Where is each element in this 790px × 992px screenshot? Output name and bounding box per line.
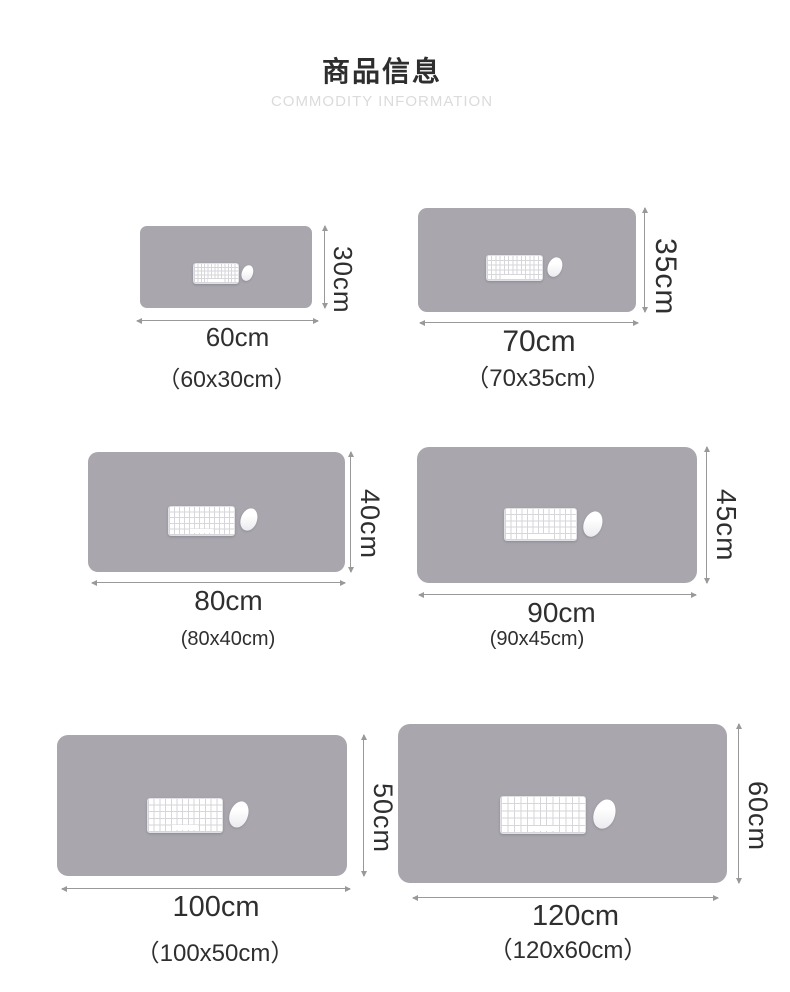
mousepad-illustration [140,226,312,308]
width-dimension-line [62,888,350,889]
width-dimension-label: 70cm [430,325,648,358]
page-title: 商品信息 [0,56,764,88]
height-dimension-line [644,208,645,312]
mouse-icon [545,255,565,278]
mouse-icon [226,799,252,830]
width-dimension-line [420,322,638,323]
mouse-icon [589,796,619,831]
keyboard-icon [504,508,577,541]
height-dimension-label: 50cm [369,748,396,889]
height-dimension-label: 30cm [330,239,356,321]
page-header: 商品信息 COMMODITY INFORMATION [0,56,764,110]
keyboard-icon [168,506,236,536]
height-dimension-line [706,447,707,583]
width-dimension-label: 80cm [102,586,355,617]
height-dimension-line [363,735,364,876]
width-dimension-label: 100cm [72,892,360,924]
height-dimension-label: 35cm [650,225,680,329]
height-dimension-label: 40cm [356,464,383,584]
page-subtitle: COMMODITY INFORMATION [0,93,764,110]
height-dimension-line [738,724,739,883]
size-panel-90x45: 45cm 90cm (90x45cm) [417,447,697,583]
height-dimension-line [324,226,325,308]
width-dimension-label: 90cm [423,598,700,629]
size-panel-70x35: 35cm 70cm （70x35cm） [418,208,636,312]
width-dimension-line [413,897,718,898]
width-dimension-line [137,320,318,321]
width-dimension-label: 60cm [147,323,328,352]
size-caption: （60x30cm） [77,367,377,392]
size-caption: （120x60cm） [418,938,718,964]
size-panel-120x60: 60cm 120cm （120x60cm） [398,724,727,883]
mouse-icon [580,509,605,539]
height-dimension-label: 45cm [712,457,740,593]
keyboard-icon [193,263,239,284]
width-dimension-label: 120cm [423,901,728,933]
keyboard-icon [147,798,223,832]
width-dimension-line [92,582,345,583]
size-caption: (80x40cm) [78,628,378,650]
height-dimension-line [350,452,351,572]
mousepad-illustration [88,452,345,572]
mousepad-illustration [57,735,347,876]
keyboard-icon [500,796,586,835]
size-panel-80x40: 40cm 80cm (80x40cm) [88,452,345,572]
size-panel-100x50: 50cm 100cm （100x50cm） [57,735,347,876]
mousepad-illustration [417,447,697,583]
mouse-icon [237,506,260,533]
size-caption: （70x35cm） [388,366,688,392]
size-caption: （100x50cm） [65,941,365,967]
keyboard-icon [486,255,544,281]
mousepad-illustration [418,208,636,312]
product-info-page: 商品信息 COMMODITY INFORMATION 30cm 60cm （60… [0,0,790,992]
mouse-icon [240,263,256,281]
width-dimension-line [419,594,696,595]
size-caption: (90x45cm) [387,628,687,650]
mousepad-illustration [398,724,727,883]
height-dimension-label: 60cm [744,737,771,896]
size-panel-60x30: 30cm 60cm （60x30cm） [140,226,312,308]
